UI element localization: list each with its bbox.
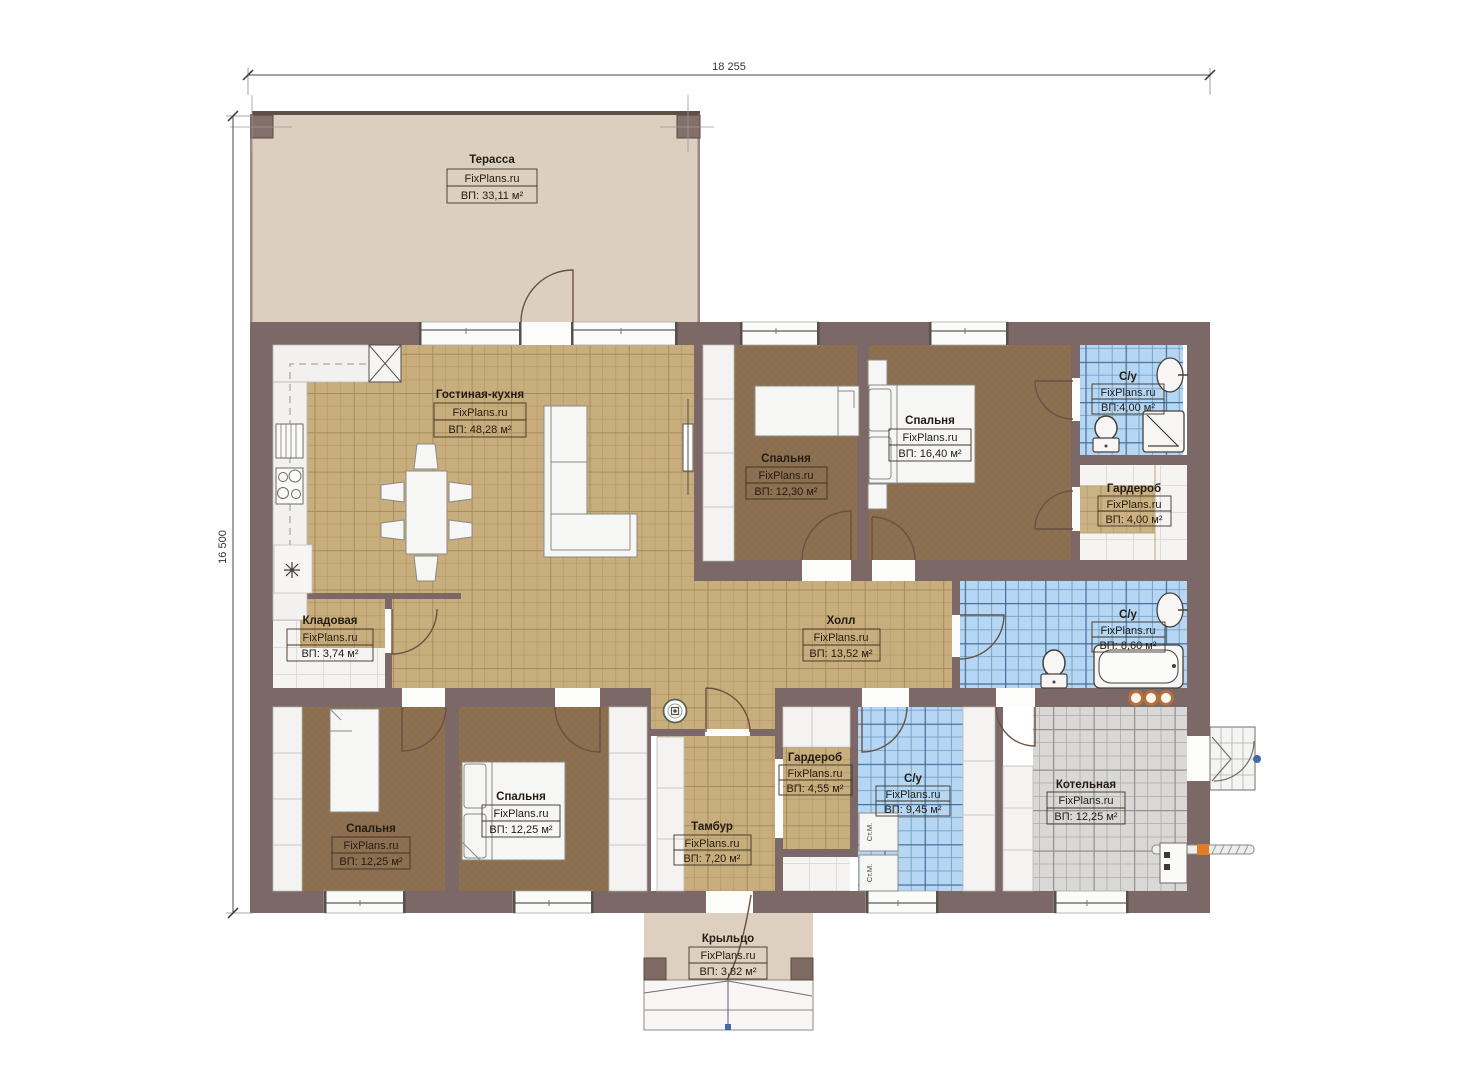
- svg-text:Ст.М.: Ст.М.: [865, 823, 874, 841]
- svg-text:Спальня: Спальня: [905, 415, 955, 427]
- svg-text:FixPlans.ru: FixPlans.ru: [343, 840, 398, 852]
- svg-text:Кладовая: Кладовая: [302, 615, 357, 627]
- svg-text:ВП: 13,52 м²: ВП: 13,52 м²: [809, 648, 873, 660]
- svg-text:ВП:4,00 м²: ВП:4,00 м²: [1101, 402, 1155, 414]
- svg-text:Терасса: Терасса: [469, 154, 515, 166]
- svg-text:ВП: 9,45 м²: ВП: 9,45 м²: [884, 804, 941, 816]
- svg-text:Спальня: Спальня: [496, 791, 546, 803]
- svg-text:Гардероб: Гардероб: [788, 752, 842, 764]
- svg-text:Спальня: Спальня: [346, 823, 396, 835]
- svg-text:С/у: С/у: [904, 773, 923, 785]
- svg-text:FixPlans.ru: FixPlans.ru: [1100, 387, 1155, 399]
- svg-text:ВП: 4,55 м²: ВП: 4,55 м²: [786, 783, 843, 795]
- svg-text:FixPlans.ru: FixPlans.ru: [452, 407, 507, 419]
- svg-text:FixPlans.ru: FixPlans.ru: [493, 808, 548, 820]
- svg-text:С/у: С/у: [1119, 371, 1138, 383]
- svg-text:С/у: С/у: [1119, 609, 1138, 621]
- svg-text:ВП: 48,28 м²: ВП: 48,28 м²: [448, 424, 512, 436]
- svg-text:ВП: 8,60 м²: ВП: 8,60 м²: [1099, 640, 1156, 652]
- svg-text:FixPlans.ru: FixPlans.ru: [1100, 625, 1155, 637]
- svg-text:18 255: 18 255: [712, 61, 746, 73]
- svg-text:ВП: 12,25 м²: ВП: 12,25 м²: [339, 856, 403, 868]
- svg-text:FixPlans.ru: FixPlans.ru: [464, 173, 519, 185]
- svg-text:FixPlans.ru: FixPlans.ru: [700, 950, 755, 962]
- svg-text:Гардероб: Гардероб: [1107, 483, 1161, 495]
- svg-text:ВП: 33,11 м²: ВП: 33,11 м²: [461, 190, 524, 202]
- svg-text:Крыльцо: Крыльцо: [702, 933, 754, 945]
- svg-text:FixPlans.ru: FixPlans.ru: [758, 470, 813, 482]
- svg-text:FixPlans.ru: FixPlans.ru: [684, 838, 739, 850]
- svg-text:Спальня: Спальня: [761, 453, 811, 465]
- svg-text:ВП: 12,25 м²: ВП: 12,25 м²: [489, 824, 553, 836]
- svg-text:Ст.М.: Ст.М.: [865, 864, 874, 882]
- svg-text:FixPlans.ru: FixPlans.ru: [1106, 499, 1161, 511]
- svg-text:FixPlans.ru: FixPlans.ru: [1058, 795, 1113, 807]
- svg-text:Котельная: Котельная: [1056, 779, 1116, 791]
- svg-text:FixPlans.ru: FixPlans.ru: [813, 632, 868, 644]
- svg-text:Гостиная-кухня: Гостиная-кухня: [436, 389, 524, 401]
- svg-text:Холл: Холл: [827, 615, 856, 627]
- svg-text:FixPlans.ru: FixPlans.ru: [885, 789, 940, 801]
- svg-text:FixPlans.ru: FixPlans.ru: [302, 632, 357, 644]
- svg-text:ВП: 3,74 м²: ВП: 3,74 м²: [301, 648, 358, 660]
- svg-text:ВП: 12,30 м²: ВП: 12,30 м²: [754, 486, 818, 498]
- svg-text:ВП: 12,25 м²: ВП: 12,25 м²: [1054, 811, 1118, 823]
- svg-text:FixPlans.ru: FixPlans.ru: [902, 432, 957, 444]
- svg-text:ВП: 7,20 м²: ВП: 7,20 м²: [683, 853, 740, 865]
- svg-text:16 500: 16 500: [217, 530, 229, 564]
- svg-text:ВП: 16,40 м²: ВП: 16,40 м²: [898, 448, 962, 460]
- svg-text:Тамбур: Тамбур: [691, 821, 733, 833]
- svg-text:ВП: 4,00 м²: ВП: 4,00 м²: [1105, 514, 1162, 526]
- svg-text:ВП: 3,82 м²: ВП: 3,82 м²: [699, 966, 756, 978]
- svg-text:FixPlans.ru: FixPlans.ru: [787, 768, 842, 780]
